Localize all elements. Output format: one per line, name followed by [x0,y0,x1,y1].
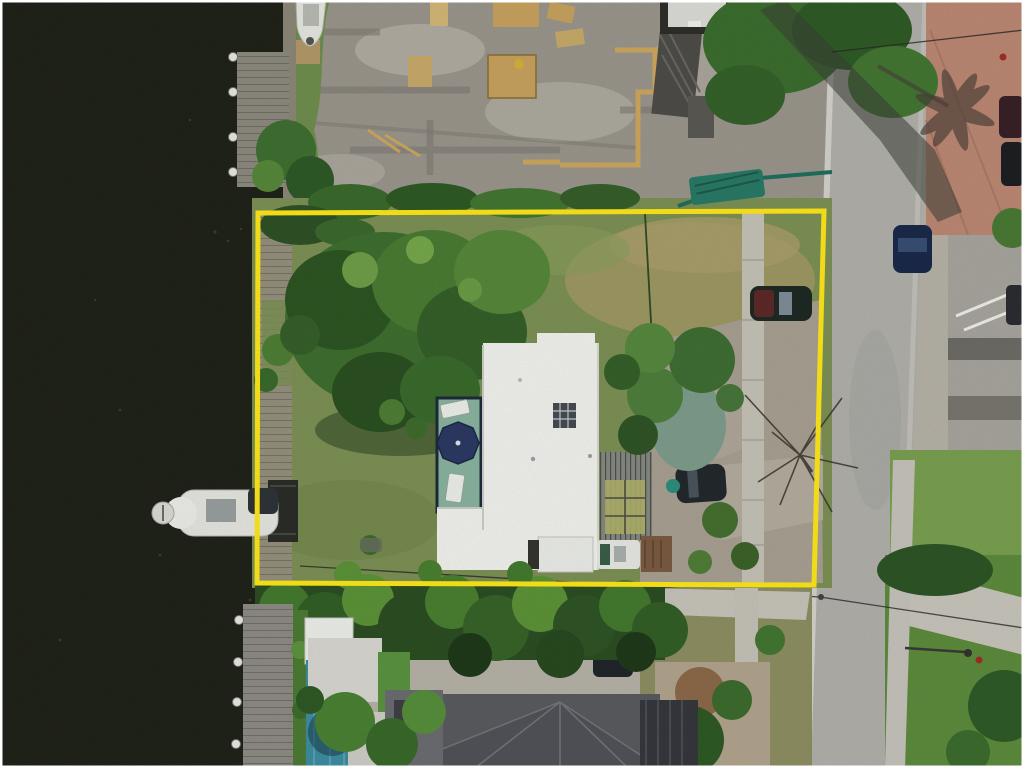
photo-frame [0,0,1024,768]
aerial-photo [0,0,1024,768]
photo-grain [0,0,1024,768]
